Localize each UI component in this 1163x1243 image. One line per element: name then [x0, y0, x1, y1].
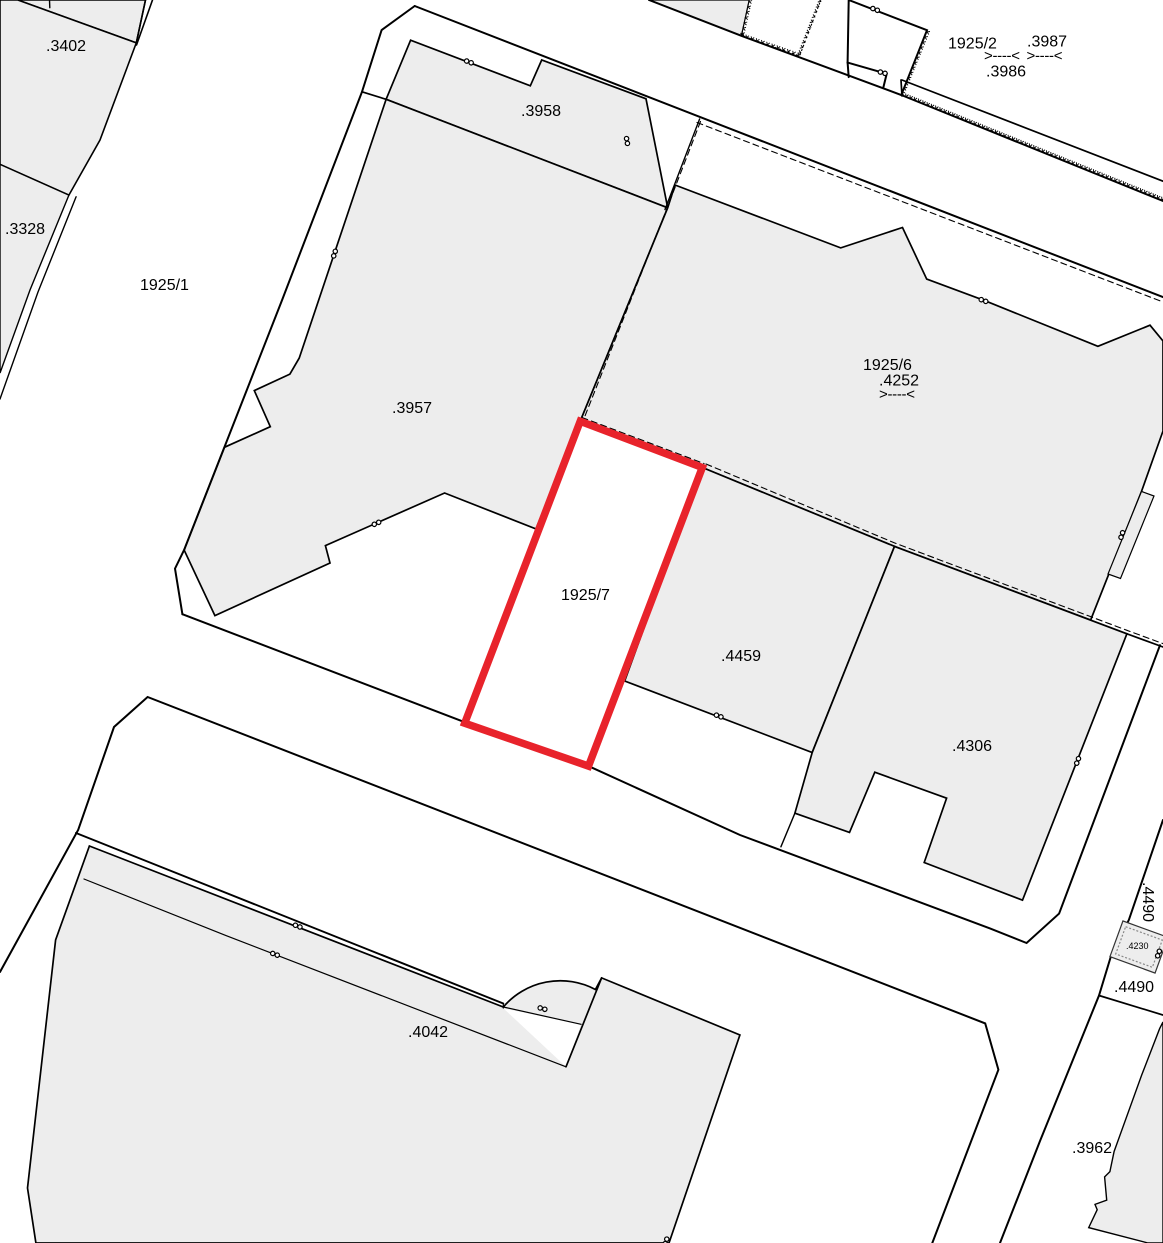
svg-text:.3962: .3962 — [1072, 1140, 1112, 1157]
svg-text:1925/1: 1925/1 — [140, 277, 189, 294]
svg-text:.4042: .4042 — [408, 1024, 448, 1041]
svg-text:.3958: .3958 — [521, 103, 561, 120]
svg-text:>----<: >----< — [984, 48, 1020, 65]
svg-text:>----<: >----< — [1027, 48, 1063, 65]
svg-text:1925/6: 1925/6 — [863, 357, 912, 374]
svg-text:.4490: .4490 — [1114, 979, 1154, 996]
svg-text:.4230: .4230 — [1126, 941, 1149, 951]
svg-text:.3402: .3402 — [46, 38, 86, 55]
svg-text:.3957: .3957 — [392, 400, 432, 417]
svg-text:>----<: >----< — [879, 386, 915, 403]
svg-text:.4306: .4306 — [952, 738, 992, 755]
svg-text:.4490: .4490 — [1139, 882, 1156, 922]
svg-text:.3986: .3986 — [986, 64, 1026, 81]
svg-text:.3328: .3328 — [5, 221, 45, 238]
svg-text:.4459: .4459 — [721, 648, 761, 665]
svg-text:1925/7: 1925/7 — [561, 587, 610, 604]
